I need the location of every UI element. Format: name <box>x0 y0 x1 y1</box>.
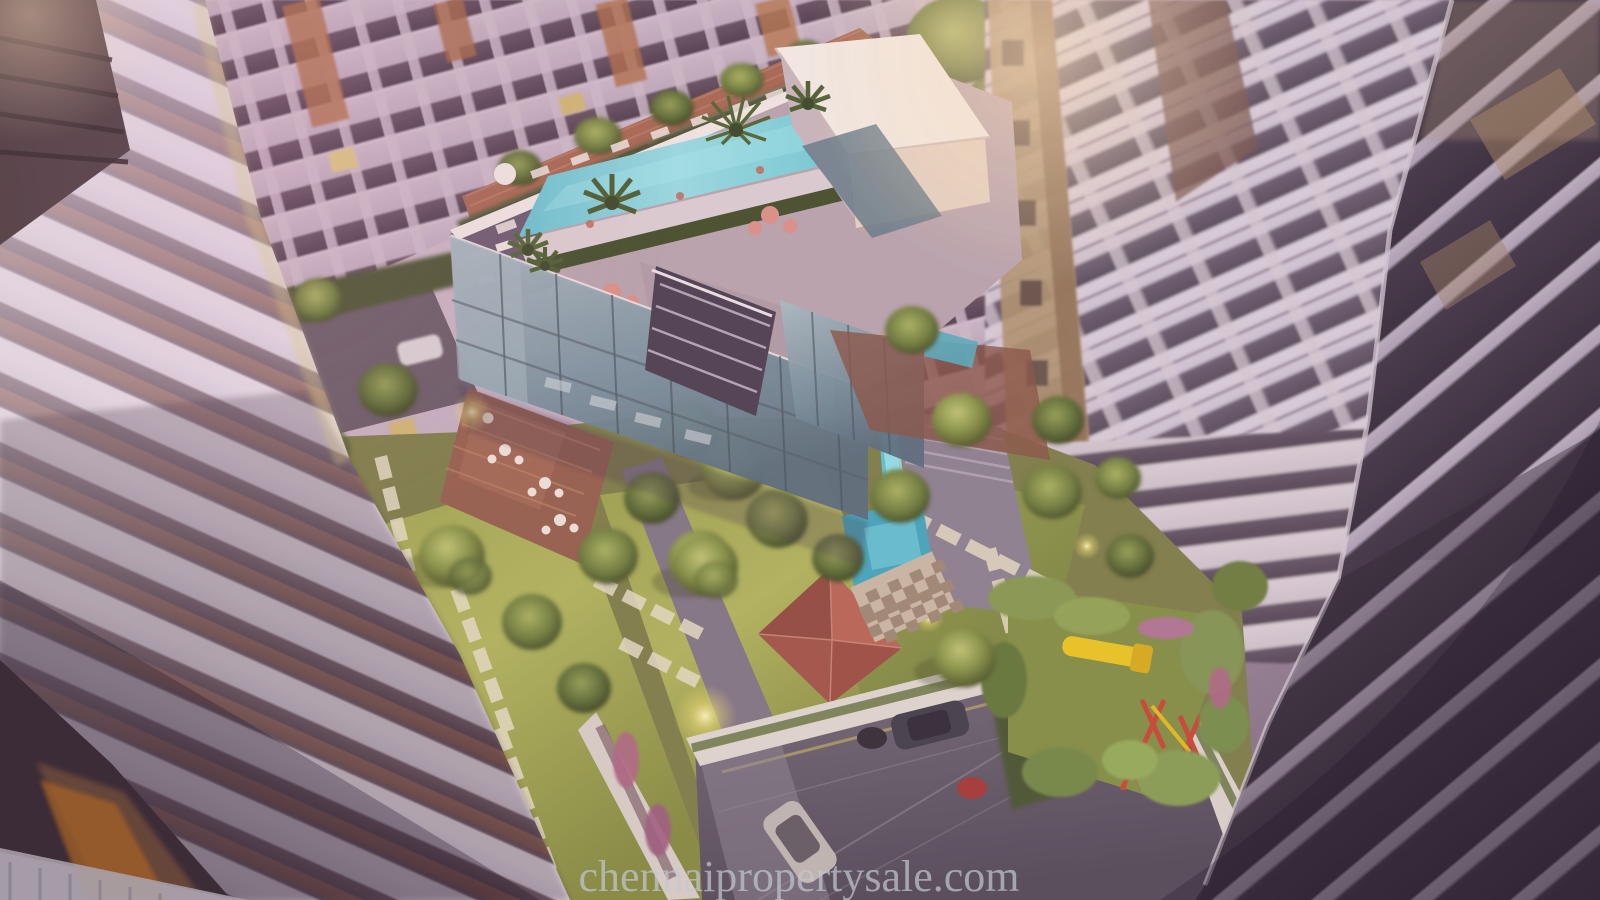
svg-text:chennaipropertysale.com: chennaipropertysale.com <box>578 852 1019 900</box>
